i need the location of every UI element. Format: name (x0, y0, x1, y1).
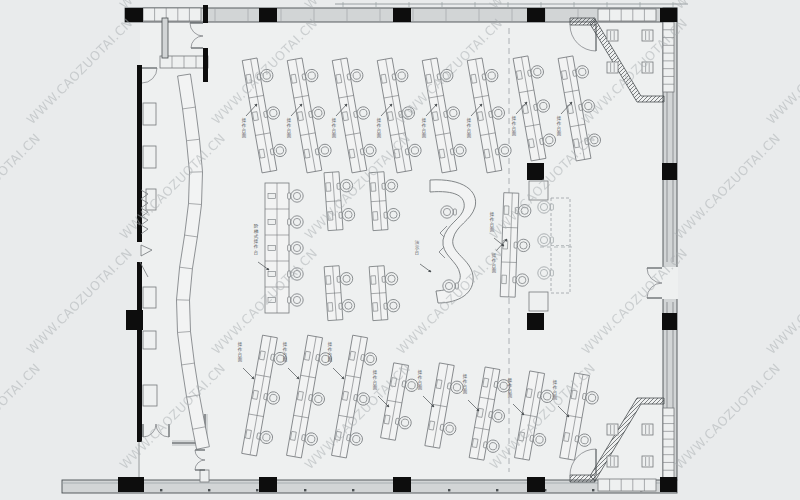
chair-seat (291, 190, 303, 202)
chair-back (382, 183, 385, 189)
floor-plan-drawing: 操作台面操作台面操作台面操作台面操作台面操作台面操作台面操作台面操作台面操作台面… (0, 0, 800, 500)
leader-label-text: 操作台面 (466, 117, 472, 139)
chair-seat (538, 234, 550, 246)
square-fixture (607, 62, 618, 73)
bottom-wall-dot (448, 489, 450, 491)
fixture-outline (607, 62, 618, 73)
structural-column (660, 477, 677, 492)
square-fixture (607, 30, 618, 41)
structural-column (259, 8, 277, 22)
leader-label-text: 操作台面 (282, 341, 288, 363)
chair-back (513, 277, 516, 283)
chair-back (339, 303, 342, 309)
structural-column (393, 477, 411, 492)
chair-back (384, 212, 387, 218)
leader-label-text: 操作台面 (421, 117, 427, 139)
chair-back (453, 209, 456, 215)
cabinet-row (598, 9, 656, 21)
monitor (328, 303, 333, 312)
fixture-box (143, 331, 156, 349)
leader-label-text: 演示台 (415, 240, 420, 255)
monitor (268, 272, 276, 277)
black-wall (126, 310, 143, 330)
fixture-box (143, 385, 157, 406)
cabinet-outline (598, 9, 656, 21)
bottom-wall-dot (592, 489, 594, 491)
chair-seat (538, 201, 550, 213)
fixture-box (143, 287, 156, 308)
fixture-box (143, 146, 156, 168)
chair-back (550, 270, 553, 276)
cabinet-row (598, 479, 656, 491)
monitor (371, 183, 376, 192)
chair-seat (516, 274, 529, 287)
chair-seat (340, 272, 353, 285)
structural-column (393, 8, 411, 22)
chair-seat (385, 272, 398, 285)
fixture-box (200, 470, 209, 482)
monitor (268, 220, 276, 225)
monitor (373, 212, 378, 221)
structural-column (527, 313, 544, 330)
bottom-wall-dot (160, 489, 162, 491)
chair-back (550, 204, 553, 210)
structural-column (118, 477, 144, 492)
square-fixture (642, 424, 653, 435)
ladder-shelf (663, 408, 674, 478)
chair-back (337, 276, 340, 282)
chair-seat (291, 294, 303, 306)
chair-back (288, 297, 291, 303)
leader-label-text: 操作台面 (507, 377, 513, 399)
chair-back (288, 219, 291, 225)
bottom-wall-dot (496, 489, 498, 491)
monitor (268, 246, 276, 251)
fixture-box (529, 292, 548, 311)
chair-back (288, 245, 291, 251)
chair-seat (441, 206, 453, 218)
monitor (373, 303, 378, 312)
structural-column (662, 163, 677, 180)
chair-back (337, 183, 340, 189)
monitor (371, 276, 376, 285)
structural-column (527, 8, 545, 22)
chair-seat (387, 208, 400, 221)
cabinet-outline (598, 479, 656, 491)
bottom-wall-dot (256, 489, 258, 491)
leader-label-text: 操作台面 (376, 117, 382, 139)
chair-seat (538, 267, 550, 279)
fixture-outline (642, 424, 653, 435)
hatched-wall (570, 18, 595, 25)
monitor (503, 240, 508, 249)
black-wall (137, 262, 142, 310)
fixture-outline (607, 456, 618, 467)
chair-back (288, 193, 291, 199)
chair-back (384, 303, 387, 309)
chair-seat (517, 239, 530, 252)
black-wall (203, 5, 208, 23)
wall-segment (162, 18, 168, 58)
square-fixture (607, 456, 618, 467)
structural-column (527, 477, 545, 492)
structural-column (259, 477, 277, 492)
fixture-outline (607, 30, 618, 41)
black-wall (203, 48, 208, 82)
fixture-outline (642, 30, 653, 41)
monitor (268, 194, 276, 199)
fixture-outline (607, 424, 618, 435)
screenshot-root: { "watermark": { "text": "WWW.CAOZUOTAI.… (0, 0, 800, 500)
monitor (326, 183, 331, 192)
bottom-wall-dot (208, 489, 210, 491)
floor-plan-stage: 操作台面操作台面操作台面操作台面操作台面操作台面操作台面操作台面操作台面操作台面… (0, 0, 800, 500)
square-fixture (642, 30, 653, 41)
chair-back (382, 276, 385, 282)
monitor (502, 275, 507, 284)
chair-seat (385, 179, 398, 192)
cabinet-row (143, 8, 201, 21)
chair-seat (291, 216, 303, 228)
leader-label-text: 操作台面 (556, 115, 562, 137)
chair-back (514, 242, 517, 248)
leader-label-text: 操作台面 (241, 117, 247, 139)
leader-label-text: 操作台面 (417, 369, 423, 391)
bottom-wall-dot (352, 489, 354, 491)
leader-label-text: 操作台面 (331, 117, 337, 139)
black-wall (137, 330, 142, 442)
leader-label-text: 操作台面 (511, 115, 517, 137)
leader-label-text: 阶梯式操作台 (253, 223, 259, 255)
monitor (326, 276, 331, 285)
chair-seat (342, 299, 355, 312)
fixture-box (143, 103, 156, 125)
fixture-outline (642, 456, 653, 467)
bottom-wall-dot (304, 489, 306, 491)
cabinet-outline (143, 8, 201, 21)
square-fixture (642, 456, 653, 467)
leader-label-text: 操作台面 (462, 373, 468, 395)
chair-seat (387, 299, 400, 312)
hatched-wall (570, 475, 595, 482)
leader-label-text: 操作台面 (327, 341, 333, 363)
square-fixture (607, 424, 618, 435)
hall-floor (140, 20, 665, 480)
leader-label-text: 操作台面 (286, 117, 292, 139)
leader-label-text: 操作台面 (237, 341, 243, 363)
structural-column (662, 313, 677, 330)
chair-back (550, 237, 553, 243)
